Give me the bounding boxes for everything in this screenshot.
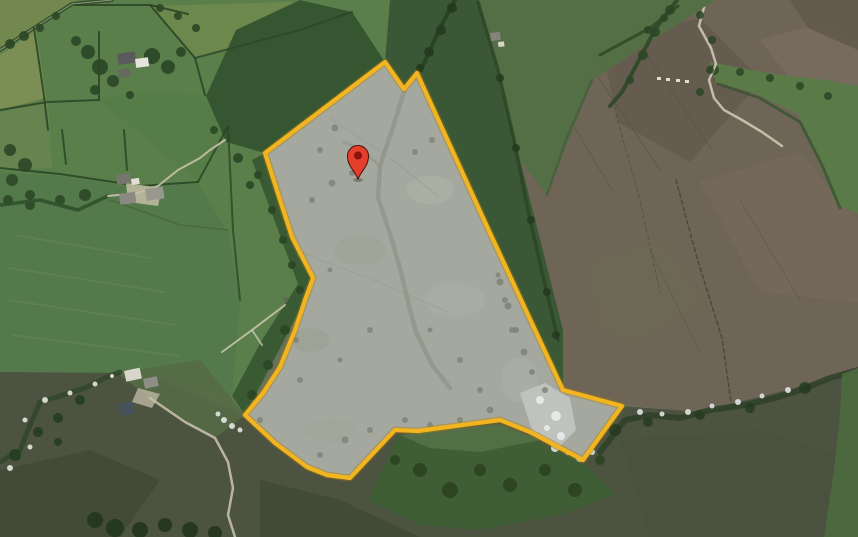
scrub-edge-trees bbox=[280, 325, 290, 335]
small-building-roof bbox=[498, 41, 504, 47]
stream-rocks-sw bbox=[28, 445, 33, 450]
farm-trees bbox=[156, 4, 164, 12]
farm3-barn bbox=[118, 401, 135, 415]
farm-trees bbox=[233, 153, 243, 163]
scrub-trees bbox=[512, 144, 520, 152]
farm2-building-roof bbox=[131, 178, 140, 185]
farm-trees bbox=[161, 60, 175, 74]
stream-rocks-se bbox=[660, 412, 665, 417]
road-trees bbox=[708, 36, 716, 44]
road-trees bbox=[696, 88, 704, 96]
top-treeline-trees bbox=[665, 5, 675, 15]
farm-trees bbox=[107, 75, 119, 87]
stream-rocks-se bbox=[637, 409, 643, 415]
stream-rocks-se bbox=[685, 409, 691, 415]
stream-rocks-sw bbox=[110, 374, 114, 378]
stream-rocks-sw bbox=[68, 391, 73, 396]
farm-trees bbox=[81, 45, 95, 59]
farm2-building bbox=[116, 173, 131, 185]
track-rocks bbox=[216, 412, 221, 417]
farm-trees bbox=[5, 39, 15, 49]
scrub-edge-trees bbox=[254, 171, 262, 179]
scrub-edge-trees bbox=[296, 286, 304, 294]
farm2-building bbox=[119, 192, 136, 205]
stream-trees-se-blobs bbox=[745, 403, 755, 413]
scrub-trees bbox=[543, 288, 551, 296]
valley-trees bbox=[796, 82, 804, 90]
farm-trees bbox=[92, 59, 108, 75]
gate-dot bbox=[676, 79, 680, 82]
top-treeline-trees bbox=[644, 26, 652, 34]
gate-dot bbox=[657, 77, 661, 80]
farm-trees bbox=[126, 91, 134, 99]
scrub-trees-bottom bbox=[390, 455, 400, 465]
farm-shed bbox=[118, 68, 131, 78]
farm-trees bbox=[36, 24, 44, 32]
farm-trees bbox=[19, 31, 29, 41]
stream-trees-se-blobs bbox=[643, 417, 653, 427]
road-trees bbox=[696, 11, 704, 19]
parcel-bushes bbox=[284, 298, 289, 303]
scrub-trees-bottom bbox=[474, 464, 486, 476]
stream-trees bbox=[9, 449, 21, 461]
track-rocks bbox=[221, 417, 227, 423]
farm2-building bbox=[145, 186, 164, 200]
corner-trees-sw bbox=[106, 519, 124, 537]
notch-trees bbox=[436, 25, 446, 35]
gate-dot bbox=[666, 78, 670, 81]
scrub-edge-trees bbox=[263, 360, 273, 370]
valley-trees bbox=[766, 74, 774, 82]
scrub-edge-trees bbox=[268, 206, 276, 214]
stream-rocks-se bbox=[760, 394, 765, 399]
top-treeline-trees bbox=[638, 50, 648, 60]
stream-rocks-sw bbox=[93, 382, 98, 387]
road-trees bbox=[706, 66, 714, 74]
scrub-trees-bottom bbox=[442, 482, 458, 498]
scrub-trees-bottom bbox=[503, 478, 517, 492]
stream-rocks-sw bbox=[23, 418, 28, 423]
top-treeline-trees bbox=[626, 76, 634, 84]
small-building bbox=[490, 32, 501, 41]
stream-rocks-se bbox=[785, 387, 791, 393]
corner-trees-sw bbox=[158, 518, 172, 532]
scrub-edge-trees bbox=[288, 261, 296, 269]
farm-trees bbox=[52, 12, 60, 20]
valley-trees bbox=[824, 92, 832, 100]
scrub-trees-bottom bbox=[539, 464, 551, 476]
stream-rocks-se bbox=[710, 404, 715, 409]
satellite-map-svg[interactable] bbox=[0, 0, 858, 537]
stream-trees bbox=[53, 413, 63, 423]
scrub-trees bbox=[496, 74, 504, 82]
lane-trees bbox=[6, 174, 18, 186]
farm-trees bbox=[246, 181, 254, 189]
top-treeline-trees bbox=[660, 14, 668, 22]
pin-inner-dot bbox=[354, 152, 362, 160]
scrub-trees bbox=[527, 216, 535, 224]
field-shade bbox=[0, 172, 240, 396]
satellite-map-viewport[interactable] bbox=[0, 0, 858, 537]
track-rocks bbox=[229, 423, 235, 429]
scrub-edge-trees bbox=[279, 236, 287, 244]
lane-trees bbox=[4, 144, 16, 156]
stream-rocks-sw bbox=[7, 465, 13, 471]
farm-trees bbox=[71, 36, 81, 46]
stream-trees bbox=[33, 427, 43, 437]
scrub-trees bbox=[552, 331, 560, 339]
stream-trees-se-blobs bbox=[799, 382, 811, 394]
farm-trees bbox=[192, 24, 200, 32]
stream-trees-se-blobs bbox=[695, 410, 705, 420]
stream-trees bbox=[54, 438, 62, 446]
lane-trees bbox=[79, 189, 91, 201]
scrub-trees-bottom bbox=[595, 455, 605, 465]
gate-dot bbox=[685, 80, 689, 83]
farm-shed bbox=[135, 57, 149, 68]
farm-trees bbox=[176, 47, 186, 57]
farm-trees bbox=[90, 85, 100, 95]
stream-trees bbox=[75, 395, 85, 405]
scrub-trees-bottom bbox=[413, 463, 427, 477]
notch-trees bbox=[447, 3, 457, 13]
corner-trees-sw bbox=[87, 512, 103, 528]
farm-trees bbox=[174, 12, 182, 20]
farm-trees bbox=[210, 126, 218, 134]
lane-trees bbox=[25, 190, 35, 200]
valley-trees bbox=[736, 68, 744, 76]
stream-rocks-se bbox=[735, 399, 741, 405]
scrub-trees-bottom bbox=[568, 483, 582, 497]
notch-trees bbox=[424, 47, 434, 57]
lane-trees bbox=[18, 158, 32, 172]
track-rocks bbox=[238, 428, 243, 433]
stream-rocks-sw bbox=[42, 397, 48, 403]
